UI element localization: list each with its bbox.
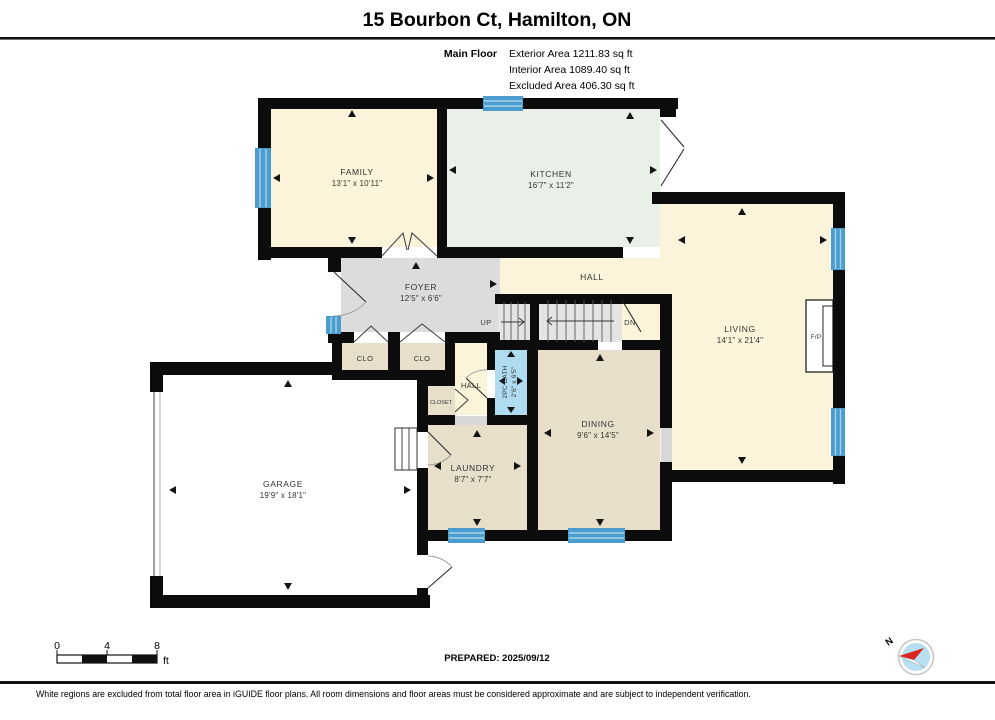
dining-living-threshold [661, 428, 672, 462]
foyer-dims: 12'5" x 6'6" [400, 294, 442, 303]
floor-plan-page: 15 Bourbon Ct, Hamilton, ON Main Floor E… [0, 0, 995, 720]
fireplace: F/P [806, 300, 833, 372]
dining-room-dims: 9'6" x 14'5" [577, 431, 619, 440]
laundry-dims: 8'7" x 7'7" [454, 475, 491, 484]
kitchen-dims: 16'7" x 11'2" [528, 181, 574, 190]
prepared-date: PREPARED: 2025/09/12 [444, 653, 549, 664]
upper-hall-label: HALL [580, 272, 604, 282]
window [255, 148, 271, 208]
bath-dims: 2'6" x 6'5" [511, 366, 518, 397]
scale-bar: 0 4 8 ft [54, 640, 169, 667]
dining-room-label: DINING [581, 419, 614, 429]
window [448, 528, 485, 543]
window [831, 408, 845, 456]
family-room-label: FAMILY [340, 167, 373, 177]
scale-unit: ft [163, 655, 169, 667]
family-room-dims: 13'1" x 10'11" [332, 179, 383, 188]
window [568, 528, 625, 543]
bath-label: 2PC BATH [502, 365, 509, 398]
family-room-floor [271, 109, 437, 247]
window [483, 96, 523, 111]
garage-side-door [428, 556, 452, 588]
interior-area: Interior Area 1089.40 sq ft [509, 64, 630, 76]
dining-room-floor [538, 350, 660, 530]
header-divider [0, 37, 995, 40]
small-closet-label: CLOSET [430, 400, 453, 406]
clo-right-label: CLO [414, 354, 431, 363]
excluded-area: Excluded Area 406.30 sq ft [509, 80, 635, 92]
window [326, 316, 341, 334]
exterior-area: Exterior Area 1211.83 sq ft [509, 48, 633, 60]
entry-steps [395, 428, 417, 470]
page-title: 15 Bourbon Ct, Hamilton, ON [363, 9, 632, 31]
hall-laundry-threshold [455, 416, 487, 425]
living-room-label: LIVING [724, 324, 755, 334]
garage-dims: 19'9" x 18'1" [260, 491, 306, 500]
disclaimer-text: White regions are excluded from total fl… [36, 689, 751, 699]
clo-left-label: CLO [357, 354, 374, 363]
stairs-down-label: DN [624, 318, 636, 327]
window [831, 228, 845, 270]
lower-hall-floor [455, 343, 487, 415]
stairs-up-label: UP [480, 318, 491, 327]
kitchen-label: KITCHEN [530, 169, 572, 179]
compass-icon: N [884, 635, 934, 674]
foyer-label: FOYER [405, 282, 437, 292]
lower-hall-label: HALL [461, 381, 481, 390]
living-room-dims: 14'1" x 21'4" [717, 336, 763, 345]
patio-door [661, 120, 684, 186]
footer-divider [0, 681, 995, 684]
garage-door [154, 392, 160, 576]
header: 15 Bourbon Ct, Hamilton, ON Main Floor E… [0, 9, 995, 92]
compass-north-label: N [884, 635, 896, 648]
laundry-label: LAUNDRY [451, 463, 496, 473]
floor-label: Main Floor [444, 48, 497, 60]
garage-label: GARAGE [263, 479, 303, 489]
fireplace-label: F/P [811, 334, 822, 341]
